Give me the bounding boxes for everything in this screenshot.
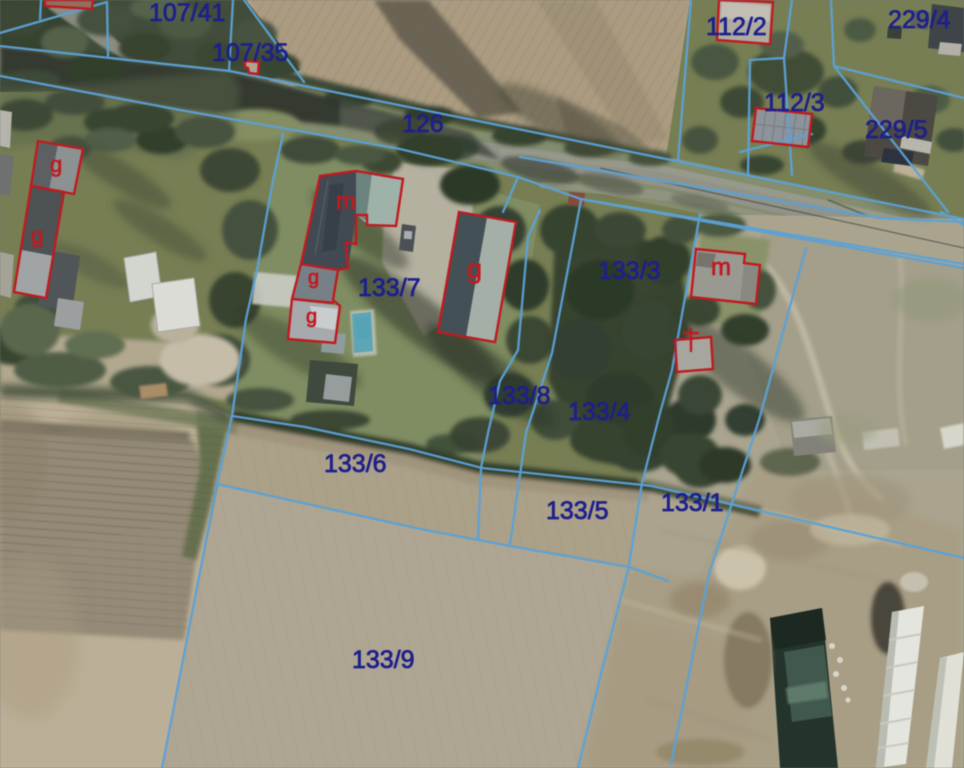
svg-text:m: m <box>336 188 356 215</box>
svg-text:112/3: 112/3 <box>764 89 825 117</box>
svg-text:112/2: 112/2 <box>706 13 767 41</box>
svg-text:133/7: 133/7 <box>358 274 421 302</box>
svg-text:107/41: 107/41 <box>149 0 225 27</box>
svg-text:133/3: 133/3 <box>598 257 661 285</box>
svg-text:133/1: 133/1 <box>661 489 724 517</box>
svg-text:133/8: 133/8 <box>488 382 551 410</box>
svg-text:107/35: 107/35 <box>212 39 288 67</box>
svg-text:133/5: 133/5 <box>546 497 609 525</box>
svg-text:g: g <box>467 254 482 284</box>
svg-text:133/9: 133/9 <box>352 646 415 674</box>
svg-text:g: g <box>308 267 319 289</box>
svg-text:133/4: 133/4 <box>568 398 631 426</box>
svg-text:229/4: 229/4 <box>888 6 951 34</box>
svg-text:m: m <box>711 254 731 281</box>
svg-text:126: 126 <box>402 110 444 138</box>
svg-text:g: g <box>31 223 43 248</box>
svg-text:g: g <box>306 306 317 328</box>
svg-text:g: g <box>50 152 62 177</box>
svg-text:133/6: 133/6 <box>324 450 387 478</box>
svg-text:229/5: 229/5 <box>865 116 928 144</box>
